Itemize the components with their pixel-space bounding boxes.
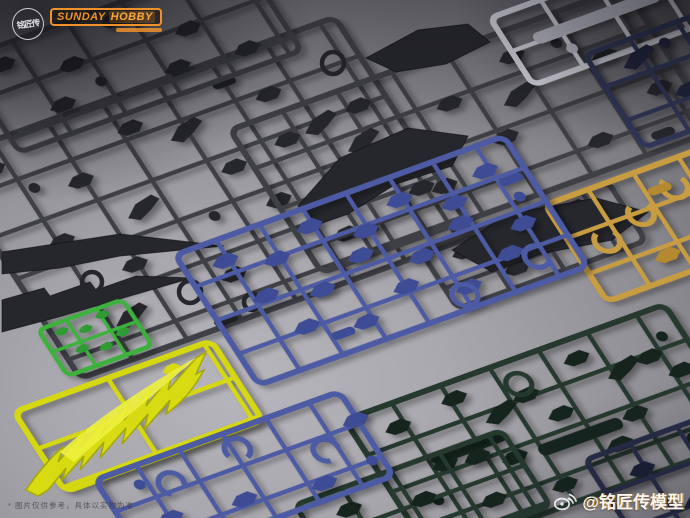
watermark-handle: @铭匠传模型 [582, 488, 684, 513]
watermark: @铭匠传模型 [553, 488, 684, 513]
logo-word-sunday: SUNDAY [57, 11, 106, 23]
photo-stage: 铭匠传 SUNDAY HOBBY * 图片仅供参考，具体以实物为准 @铭匠传模型 [0, 0, 690, 518]
sunday-hobby-logo-box: SUNDAY HOBBY [50, 8, 162, 26]
brand-seal-text: 铭匠传 [16, 16, 40, 31]
disclaimer-note: * 图片仅供参考，具体以实物为准 [8, 500, 134, 511]
brand-logo-cluster: 铭匠传 SUNDAY HOBBY [12, 8, 162, 40]
brand-seal: 铭匠传 [10, 6, 46, 42]
weibo-icon [553, 491, 577, 511]
sunday-hobby-logo: SUNDAY HOBBY [50, 8, 162, 32]
logo-word-hobby: HOBBY [109, 11, 155, 23]
logo-tagline-bar [116, 28, 162, 32]
sprue-photo [0, 0, 690, 518]
